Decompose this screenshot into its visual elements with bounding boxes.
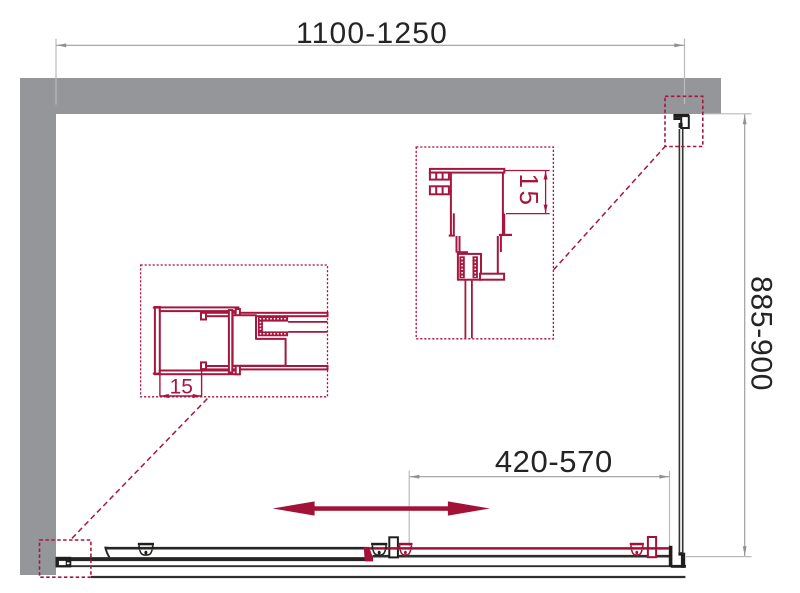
svg-text:15: 15 bbox=[514, 174, 544, 208]
svg-text:15: 15 bbox=[170, 375, 193, 398]
svg-text:885-900: 885-900 bbox=[745, 276, 778, 391]
svg-text:420-570: 420-570 bbox=[495, 444, 613, 479]
svg-text:1100-1250: 1100-1250 bbox=[296, 17, 448, 50]
